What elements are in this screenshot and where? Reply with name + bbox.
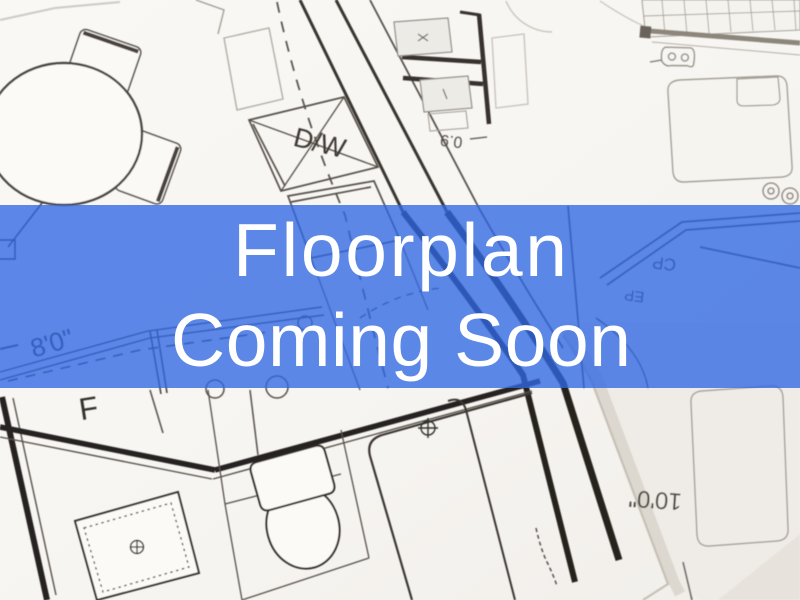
svg-text:0.9: 0.9 (439, 131, 463, 151)
svg-text:10'0": 10'0" (628, 484, 683, 515)
svg-text:Floorplan: Floorplan (233, 208, 567, 292)
svg-text:Coming Soon: Coming Soon (171, 298, 631, 382)
